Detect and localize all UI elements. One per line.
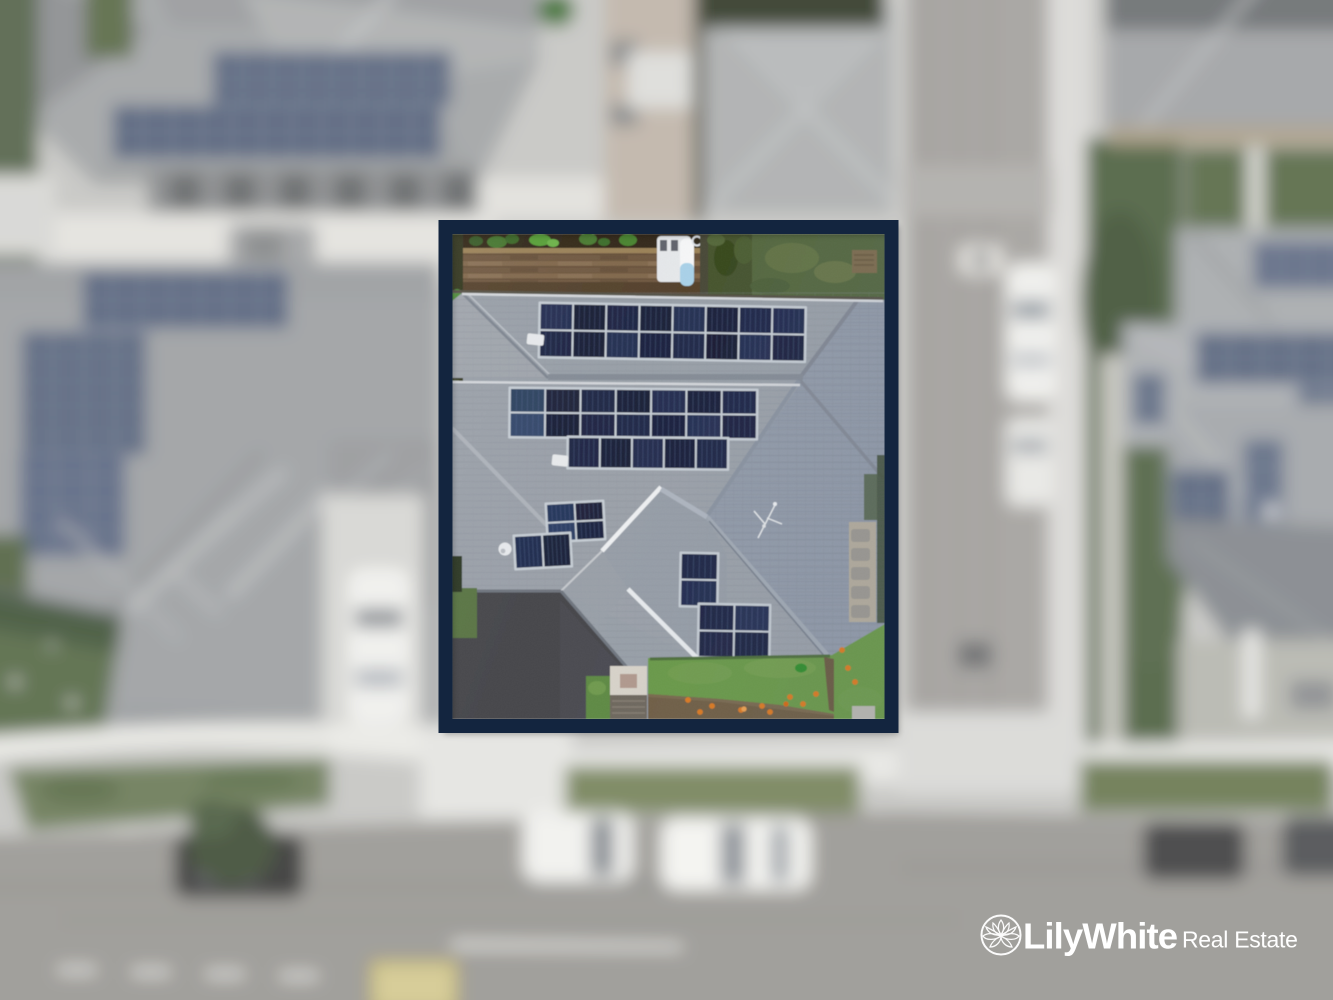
svg-text:Real Estate: Real Estate	[1182, 927, 1298, 953]
svg-text:LilyWhite: LilyWhite	[1023, 916, 1178, 957]
